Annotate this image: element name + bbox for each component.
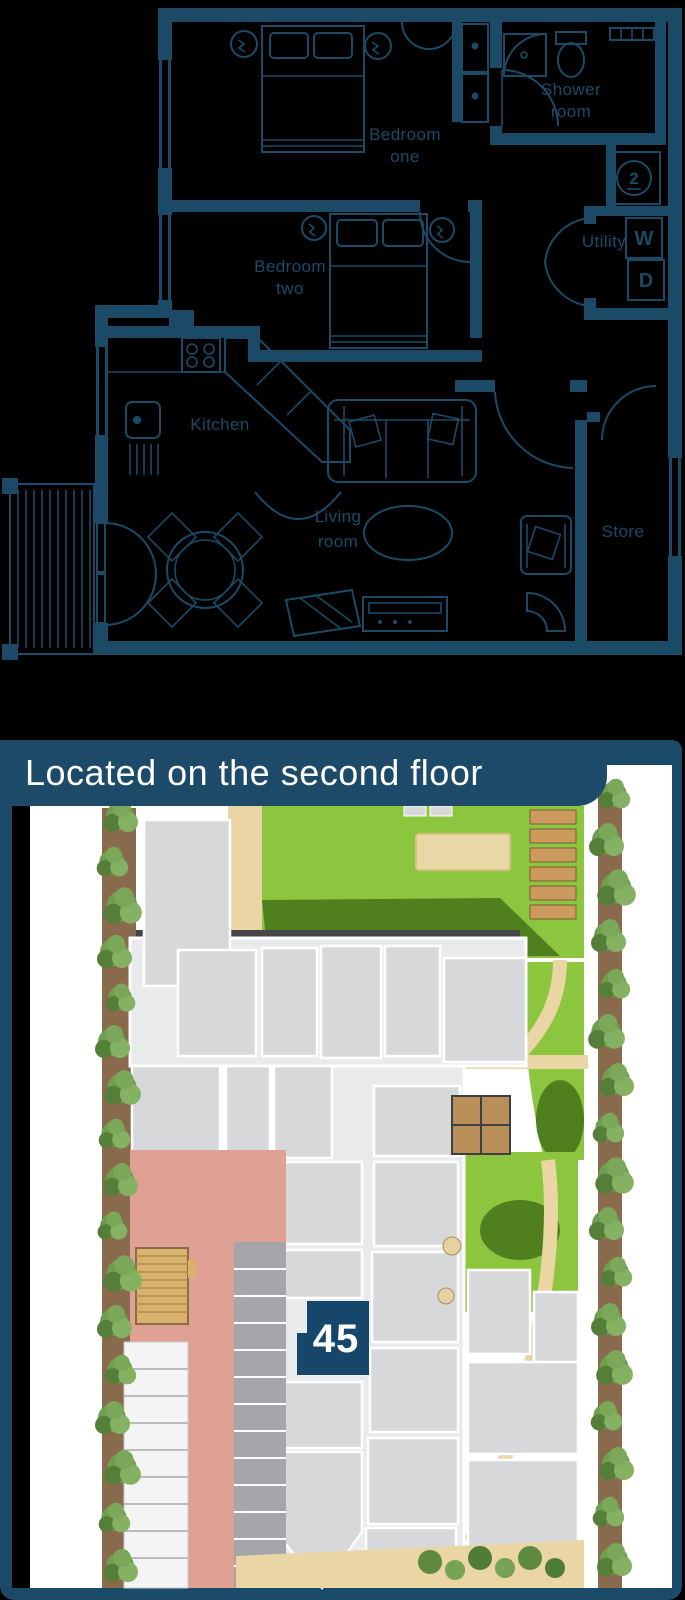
bedroom-one-label: Bedroom — [369, 125, 441, 144]
svg-text:W: W — [635, 228, 654, 250]
deck-slats — [18, 490, 90, 648]
svg-text:room: room — [318, 532, 358, 551]
door-icon — [602, 386, 656, 440]
banner-text: Located on the second floor — [0, 752, 483, 794]
tv-unit-icon — [363, 597, 447, 631]
shower-room-label: Shower — [541, 80, 601, 99]
deck — [136, 1248, 196, 1324]
utility-label: Utility — [582, 232, 626, 251]
image-edge-strip — [12, 806, 30, 1588]
bedroom-one: Bedroom one — [231, 22, 456, 166]
door-icon — [402, 22, 456, 49]
bed-icon — [330, 214, 427, 348]
bedroom-two-label: Bedroom — [254, 257, 326, 276]
umbrella — [438, 1288, 454, 1304]
kitchen-label: Kitchen — [190, 415, 250, 434]
store-room: Store — [602, 386, 656, 541]
door-icon — [495, 392, 573, 468]
sandpit — [416, 834, 510, 870]
bench — [404, 806, 426, 816]
kitchen: Kitchen — [108, 338, 350, 519]
parking-row — [234, 1242, 286, 1588]
floor-plan: Bedroom one Shower room 2 — [0, 0, 685, 740]
radiator-icon — [126, 402, 160, 475]
wardrobe-icon — [169, 310, 194, 326]
toilet-icon — [556, 32, 586, 77]
shower-room: Shower room — [502, 28, 654, 126]
svg-text:room: room — [551, 102, 591, 121]
bed-icon — [262, 26, 364, 152]
umbrella — [443, 1237, 461, 1255]
svg-text:2: 2 — [629, 169, 638, 188]
hall-closets — [462, 24, 488, 122]
living-room-label: Living — [315, 507, 362, 526]
svg-text:one: one — [390, 147, 420, 166]
unit-45-label: 45 — [313, 1317, 360, 1361]
svg-text:D: D — [639, 270, 653, 292]
store-label: Store — [602, 522, 645, 541]
armchair-icon — [521, 516, 571, 574]
bench — [430, 806, 452, 816]
balcony — [2, 478, 156, 660]
hob-icon — [182, 338, 220, 372]
coffee-table-icon — [364, 506, 452, 560]
svg-text:two: two — [276, 279, 304, 298]
site-plan: 45 — [0, 765, 685, 1600]
utility-room: W D Utility — [545, 218, 664, 306]
unit-45-marker: 45 — [297, 1301, 369, 1375]
second-floor-banner: Located on the second floor — [0, 740, 607, 806]
sideboard-icon — [286, 590, 360, 636]
plant-icon — [527, 593, 565, 631]
dining-table-icon — [148, 513, 262, 627]
radiator-icon — [610, 28, 654, 40]
lamp-icon — [231, 31, 391, 59]
